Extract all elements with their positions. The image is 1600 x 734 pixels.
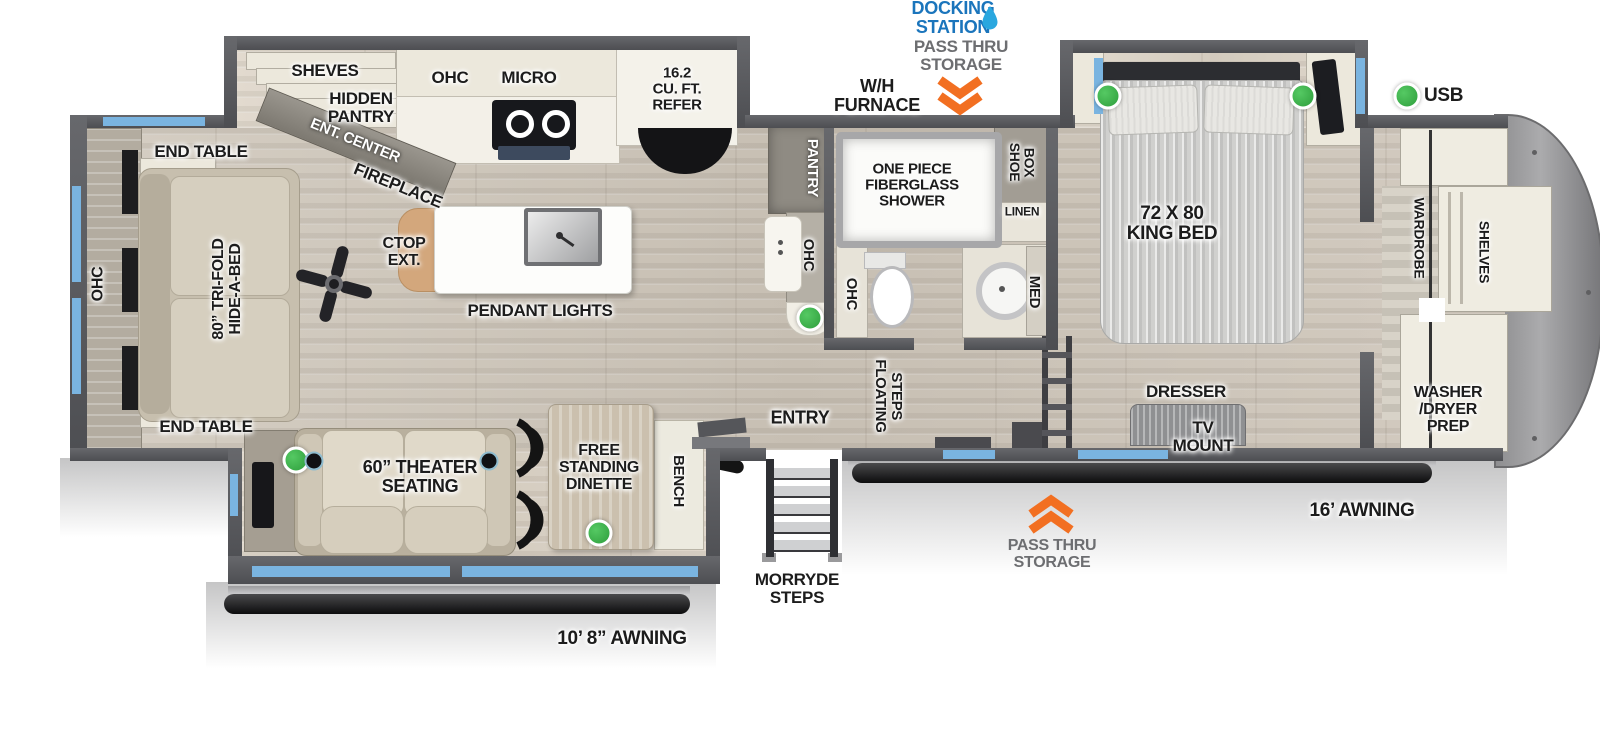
theater-seat — [320, 506, 404, 554]
wall — [70, 448, 242, 461]
label-shelves-front: SHELVES — [1477, 221, 1492, 283]
body-edge — [228, 586, 690, 594]
morryde-step-tread — [766, 486, 838, 498]
label-ctop-ext: CTOP EXT. — [383, 236, 426, 270]
faucet — [778, 250, 783, 255]
label-ohc-kitchen: OHC — [432, 69, 469, 87]
cap-screw — [1532, 436, 1537, 441]
label-shoe-box: SHOE BOX — [1007, 143, 1036, 181]
bedroom-slide-wall — [1060, 40, 1368, 53]
stair-tread — [1042, 430, 1072, 436]
window-accent — [103, 117, 205, 126]
wall — [70, 115, 87, 461]
window-accent — [462, 566, 698, 577]
front-upper-cabinet — [1400, 128, 1508, 186]
label-ohc-counter: OHC — [800, 239, 816, 271]
morryde-step-rail — [766, 459, 774, 557]
usb-dot — [1394, 83, 1421, 110]
burner — [542, 110, 570, 138]
theater-seat — [404, 506, 488, 554]
rear-cabinet-inset — [122, 150, 138, 214]
label-pendant-lights: PENDANT LIGHTS — [467, 302, 612, 320]
label-pantry: PANTRY — [804, 139, 820, 197]
wall — [714, 448, 766, 461]
stair-tread — [1042, 404, 1072, 410]
label-usb: USB — [1424, 86, 1463, 106]
label-pass-thru-top: PASS THRU STORAGE — [914, 38, 1008, 74]
label-morryde-steps: MORRYDE STEPS — [755, 571, 839, 607]
awning-roller-right — [852, 463, 1432, 483]
led-light-dot — [797, 305, 824, 332]
wall — [1368, 115, 1508, 128]
label-washer-dryer: WASHER /DRYER PREP — [1414, 385, 1482, 435]
label-linen: LINEN — [1005, 206, 1040, 219]
sofa-back — [140, 174, 170, 414]
drain — [999, 286, 1005, 292]
label-wh-furnace: W/H FURNACE — [834, 77, 920, 115]
morryde-step-tread — [766, 522, 838, 534]
label-king-bed: 72 X 80 KING BED — [1127, 204, 1218, 244]
bedroom-slide-wall — [1060, 40, 1073, 128]
label-tv-mount: TV MOUNT — [1173, 419, 1234, 455]
led-light-dot — [1290, 83, 1317, 110]
label-awning-left: 10’ 8” AWNING — [557, 629, 687, 649]
pass-thru-arrow-up-icon — [1025, 494, 1077, 534]
led-light-dot — [586, 520, 613, 547]
wall — [745, 115, 1075, 128]
label-med: MED — [1026, 276, 1042, 308]
window-accent — [1078, 450, 1168, 459]
label-end-table-bottom: END TABLE — [159, 418, 252, 436]
pantry-cabinet — [768, 124, 832, 214]
label-dresser: DRESSER — [1146, 383, 1226, 401]
label-sheves: SHEVES — [291, 62, 358, 80]
cabinet-inset — [252, 462, 274, 528]
toilet — [870, 266, 914, 328]
hall-sink-counter — [764, 216, 802, 292]
label-refer: 16.2 CU. FT. REFER — [652, 65, 701, 112]
awning-roller-left — [224, 594, 690, 614]
window-accent — [72, 298, 81, 394]
water-drop-icon — [980, 5, 1000, 31]
cap-screw — [1532, 150, 1537, 155]
label-shower: ONE PIECE FIBERGLASS SHOWER — [865, 161, 959, 208]
cupholder-dot — [305, 452, 324, 471]
label-bench: BENCH — [670, 455, 686, 507]
cap-screw — [1586, 290, 1591, 295]
rear-cabinet-inset — [122, 346, 138, 410]
morryde-step-rail — [830, 459, 838, 557]
faucet — [778, 240, 783, 245]
morryde-step-tread — [766, 504, 838, 516]
kitchen-slide-wall — [224, 36, 237, 128]
pass-thru-arrow-down-icon — [934, 76, 986, 116]
label-ohc-rear: OHC — [91, 267, 108, 302]
morryde-step-tread — [766, 468, 838, 480]
label-micro: MICRO — [501, 69, 556, 87]
label-floating-steps: FLOATING STEPS — [872, 359, 904, 432]
ground-shadow — [842, 460, 1507, 620]
oven-front — [498, 146, 570, 160]
wall — [824, 338, 914, 350]
label-end-table-top: END TABLE — [154, 143, 247, 161]
label-hidden-pantry: HIDDEN PANTRY — [328, 90, 394, 126]
wall — [1046, 128, 1058, 350]
kitchen-slide-wall — [224, 36, 750, 50]
window-accent — [72, 186, 81, 282]
window-accent — [1356, 58, 1365, 114]
closet-door-gap — [1419, 298, 1445, 322]
burner — [506, 110, 534, 138]
stair-tread — [1042, 378, 1072, 384]
window-accent — [943, 450, 995, 459]
label-dinette: FREE STANDING DINETTE — [559, 443, 639, 493]
ceiling-fan-icon — [292, 242, 376, 326]
front-shelves — [1438, 186, 1552, 312]
label-hide-a-bed: 80” TRI-FOLD HIDE-A-BED — [211, 238, 245, 339]
window-accent — [230, 474, 238, 516]
stair-tread — [1042, 352, 1072, 358]
pillow — [1203, 84, 1295, 135]
label-entry: ENTRY — [771, 409, 830, 428]
shelf-divider — [1460, 192, 1463, 304]
shelf-divider — [1448, 192, 1451, 304]
label-ohc-bath: OHC — [843, 278, 859, 310]
led-light-dot — [1095, 83, 1122, 110]
cupholder-dot — [480, 452, 499, 471]
theater-slide-wall — [706, 448, 720, 570]
label-pass-thru-bottom: PASS THRU STORAGE — [1008, 538, 1097, 572]
rear-cabinet-inset — [122, 248, 138, 312]
label-awning-right: 16’ AWNING — [1309, 501, 1414, 521]
wall — [964, 338, 1048, 350]
wall — [824, 128, 834, 350]
wall — [1360, 352, 1374, 448]
morryde-step-tread — [766, 540, 838, 552]
label-wardrobe: WARDROBE — [1412, 198, 1427, 279]
window-accent — [252, 566, 450, 577]
wall — [1360, 128, 1374, 222]
floorplan-canvas: DOCKING STATION PASS THRU STORAGE W/H FU… — [0, 0, 1600, 734]
label-theater-seating: 60” THEATER SEATING — [363, 458, 477, 496]
